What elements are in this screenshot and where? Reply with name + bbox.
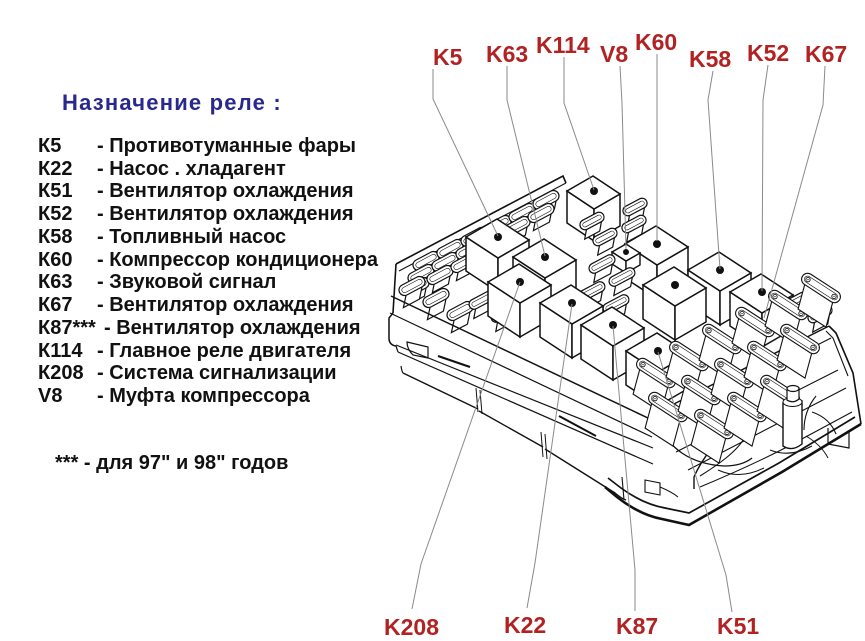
svg-text:- Звуковой сигнал: - Звуковой сигнал xyxy=(97,271,276,293)
svg-text:К114: К114 xyxy=(38,340,83,362)
svg-text:К58: К58 xyxy=(38,226,72,248)
svg-text:- Вентилятор охлаждения: - Вентилятор охлаждения xyxy=(97,180,354,202)
svg-text:- Вентилятор охлаждения: - Вентилятор охлаждения xyxy=(104,317,361,339)
svg-text:K51: K51 xyxy=(717,613,759,639)
svg-text:K52: K52 xyxy=(747,40,789,66)
svg-text:- Муфта компрессора: - Муфта компрессора xyxy=(97,385,311,407)
svg-text:К5: К5 xyxy=(38,135,61,157)
svg-text:К60: К60 xyxy=(38,249,72,271)
svg-text:К51: К51 xyxy=(38,180,72,202)
svg-text:K67: K67 xyxy=(805,41,847,67)
svg-text:K87: K87 xyxy=(616,613,658,639)
svg-text:- Компрессор кондиционера: - Компрессор кондиционера xyxy=(97,249,379,271)
svg-text:К22: К22 xyxy=(38,158,72,180)
svg-text:K58: K58 xyxy=(689,46,731,72)
svg-text:V8: V8 xyxy=(600,41,628,67)
svg-text:K114: K114 xyxy=(536,32,590,58)
svg-text:К87***: К87*** xyxy=(38,317,96,339)
svg-text:K22: K22 xyxy=(504,612,546,638)
svg-text:K60: K60 xyxy=(635,29,677,55)
svg-text:K208: K208 xyxy=(384,614,439,640)
svg-text:К52: К52 xyxy=(38,203,72,225)
svg-text:- Система сигнализации: - Система сигнализации xyxy=(97,362,337,384)
svg-text:- Вентилятор охлаждения: - Вентилятор охлаждения xyxy=(97,294,354,316)
svg-text:*** - для 97" и 98" годов: *** - для 97" и 98" годов xyxy=(55,452,288,474)
svg-text:- Топливный насос: - Топливный насос xyxy=(97,226,286,248)
svg-text:V8: V8 xyxy=(38,385,62,407)
svg-text:- Вентилятор охлаждения: - Вентилятор охлаждения xyxy=(97,203,354,225)
svg-text:К63: К63 xyxy=(38,271,72,293)
svg-text:K63: K63 xyxy=(486,41,528,67)
svg-text:К67: К67 xyxy=(38,294,72,316)
svg-text:- Главное реле двигателя: - Главное реле двигателя xyxy=(97,340,351,362)
svg-text:- Противотуманные фары: - Противотуманные фары xyxy=(97,135,356,157)
svg-text:- Насос . хладагент: - Насос . хладагент xyxy=(97,158,286,180)
svg-text:K5: K5 xyxy=(433,44,463,70)
svg-text:Назначение реле :: Назначение реле : xyxy=(62,90,282,115)
svg-text:К208: К208 xyxy=(38,362,84,384)
